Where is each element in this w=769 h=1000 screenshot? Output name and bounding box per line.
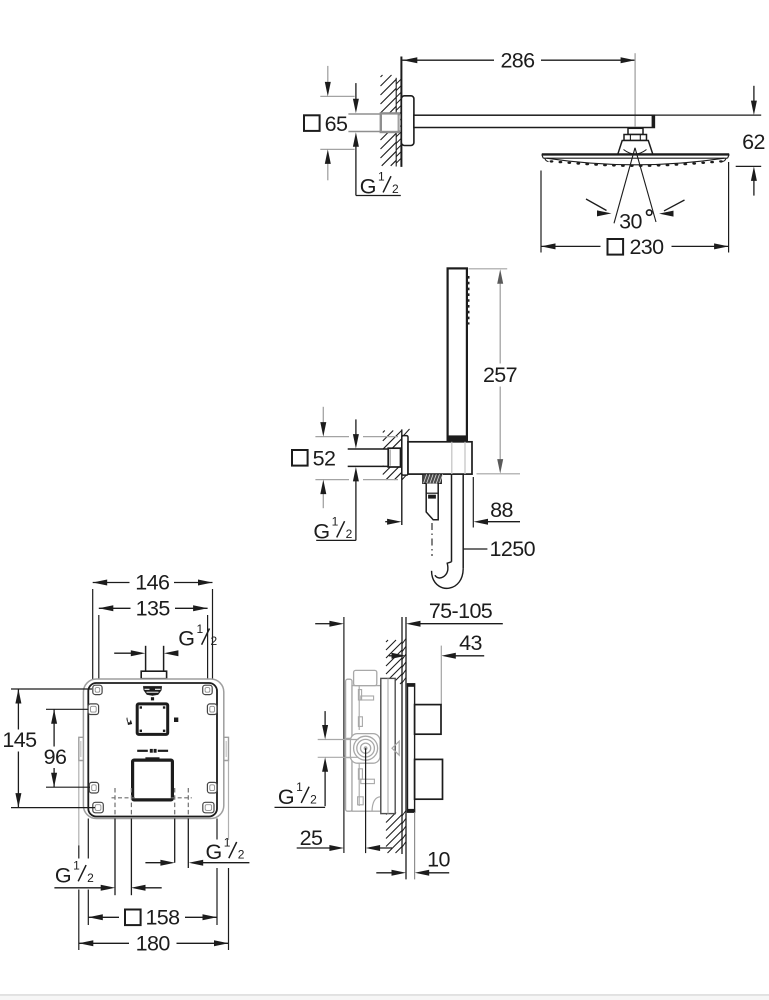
svg-text:G: G (206, 840, 223, 864)
svg-text:2: 2 (87, 871, 94, 885)
svg-text:25: 25 (300, 826, 323, 850)
svg-text:G: G (278, 785, 295, 809)
svg-text:88: 88 (490, 498, 513, 522)
svg-text:30: 30 (619, 210, 642, 234)
svg-text:1250: 1250 (490, 537, 536, 561)
svg-text:65: 65 (325, 112, 348, 136)
svg-text:257: 257 (483, 363, 517, 387)
svg-text:1: 1 (73, 858, 80, 872)
svg-text:G: G (178, 627, 195, 651)
svg-text:G: G (360, 174, 377, 198)
svg-text:43: 43 (459, 631, 482, 655)
svg-text:2: 2 (310, 792, 317, 806)
svg-text:10: 10 (427, 848, 450, 872)
svg-text:G: G (55, 863, 72, 887)
svg-text:145: 145 (2, 728, 37, 752)
svg-text:2: 2 (211, 634, 218, 648)
svg-text:2: 2 (392, 182, 399, 196)
svg-text:1: 1 (296, 780, 303, 794)
svg-text:52: 52 (313, 447, 336, 471)
svg-text:146: 146 (135, 571, 170, 595)
svg-text:1: 1 (378, 170, 385, 184)
svg-text:180: 180 (136, 932, 171, 956)
svg-text:135: 135 (136, 596, 171, 620)
svg-text:96: 96 (44, 745, 67, 769)
svg-text:1: 1 (224, 835, 231, 849)
svg-text:1: 1 (332, 515, 339, 529)
svg-text:230: 230 (629, 235, 664, 259)
svg-text:286: 286 (500, 49, 535, 73)
svg-text:75-105: 75-105 (429, 599, 493, 623)
svg-text:2: 2 (346, 527, 353, 541)
svg-text:158: 158 (145, 906, 180, 930)
svg-text:2: 2 (238, 848, 245, 862)
svg-text:1: 1 (197, 622, 204, 636)
svg-text:62: 62 (742, 130, 765, 154)
